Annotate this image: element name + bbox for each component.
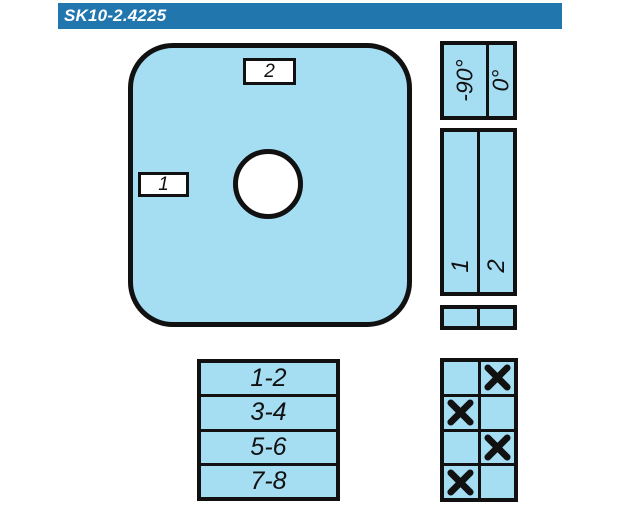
terminal-row: 3-4 <box>201 397 336 428</box>
x-mark-icon <box>446 398 475 427</box>
contact-cell-closed <box>481 362 515 394</box>
position-column-1-label: 1 <box>449 259 473 272</box>
spacer-cell-2 <box>480 309 513 326</box>
title-bar: SK10-2.4225 <box>58 3 562 29</box>
contact-cell-open <box>444 362 478 394</box>
shaft-hole <box>233 149 303 219</box>
position-label-2-box: 2 <box>243 58 296 85</box>
contact-table <box>440 358 518 502</box>
position-column-1: 1 <box>444 132 477 292</box>
position-label-1-box: 1 <box>138 172 189 197</box>
contact-cell-open <box>481 466 515 498</box>
angle-label-0: 0° <box>490 70 513 92</box>
spacer-strip <box>440 305 517 330</box>
x-mark-icon <box>483 433 512 462</box>
position-label-2-text: 2 <box>264 62 275 81</box>
terminal-row: 5-6 <box>201 432 336 463</box>
terminal-row: 7-8 <box>201 466 336 497</box>
position-column-2-label: 2 <box>485 259 509 272</box>
position-label-1-text: 1 <box>158 175 169 194</box>
x-mark-icon <box>446 468 475 497</box>
position-column-2: 2 <box>480 132 513 292</box>
contact-cell-closed <box>444 397 478 429</box>
angle-cell-minus90: -90° <box>444 45 486 116</box>
terminal-table: 1-23-45-67-8 <box>197 359 340 501</box>
position-column-table: 1 2 <box>440 128 517 296</box>
contact-cell-closed <box>444 466 478 498</box>
spacer-cell-1 <box>444 309 477 326</box>
contact-cell-closed <box>481 432 515 464</box>
angle-cell-0: 0° <box>489 45 513 116</box>
terminal-row: 1-2 <box>201 363 336 394</box>
angle-label-minus90: -90° <box>454 59 477 101</box>
model-number: SK10-2.4225 <box>58 6 166 26</box>
contact-cell-open <box>444 432 478 464</box>
angle-table: -90° 0° <box>440 41 517 120</box>
contact-cell-open <box>481 397 515 429</box>
x-mark-icon <box>483 363 512 392</box>
